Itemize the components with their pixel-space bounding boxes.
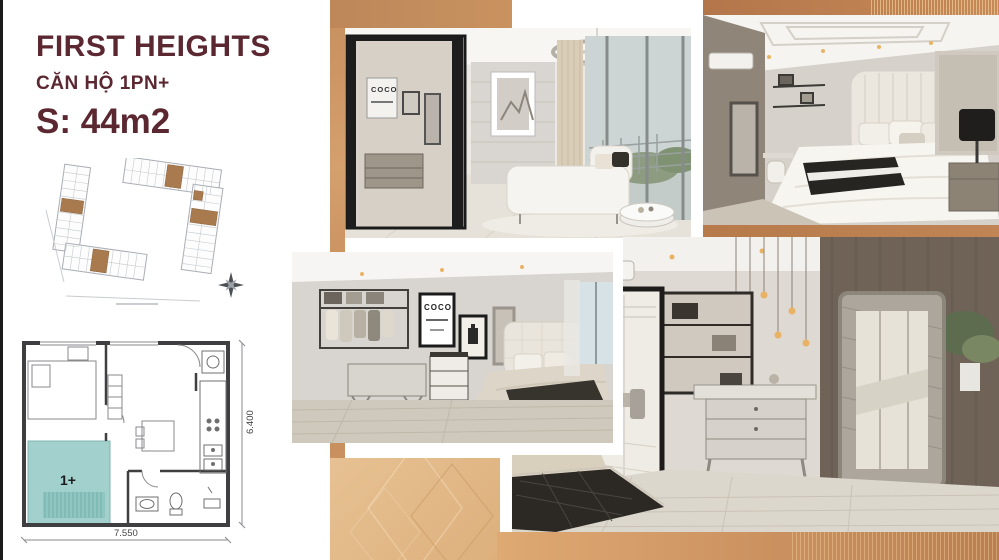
site-plan-diagram (38, 158, 253, 308)
copper-band-bottom-stripes (789, 532, 999, 560)
coffee-table (620, 203, 674, 227)
floor-plan: 1+ (10, 333, 275, 558)
glass-partition: COCO (347, 36, 465, 228)
height-dimension-label: 6.400 (245, 410, 256, 434)
copper-band-stripes (869, 0, 999, 15)
slide-left-edge (0, 0, 3, 560)
page-title: FIRST HEIGHTS (36, 30, 271, 64)
carpet-floor (292, 400, 613, 443)
photo-bedroom-angle: COCO (292, 252, 613, 443)
unit-type-label: CĂN HỘ 1PN+ (36, 73, 170, 95)
dining-table-symbol (136, 421, 174, 451)
standing-mirror (731, 103, 757, 175)
copper-band-bottom (497, 532, 999, 560)
kitchen-symbols (200, 351, 226, 473)
window-2 (564, 280, 613, 376)
bathroom-symbols (136, 487, 220, 515)
gold-rect-bottom (330, 458, 500, 560)
drawer-chest (430, 352, 468, 400)
wardrobe-symbol (108, 375, 122, 419)
width-dimension-label: 7.550 (114, 528, 138, 539)
coco-poster-text: COCO (371, 85, 398, 94)
street-name-illegible (116, 303, 158, 305)
coco-poster-frame: COCO (420, 294, 454, 346)
gold-diamond-pattern (330, 458, 500, 560)
photo-living-room: COCO (345, 28, 691, 238)
coco-poster-text-2: COCO (424, 303, 452, 312)
floorplan-highlight-room: 1+ (28, 441, 110, 525)
room-label: 1+ (60, 472, 76, 488)
copper-band-mid-right (703, 224, 999, 238)
bed-symbol (28, 347, 96, 419)
photo-bedroom-main (703, 15, 999, 225)
gold-ribbon-top (330, 0, 512, 28)
building-footprint (50, 158, 225, 289)
copper-band-top-right (703, 0, 999, 15)
leaning-mirror (840, 293, 944, 487)
perfume-poster-frame (460, 316, 486, 358)
interior-walls (106, 343, 228, 525)
slide: FIRST HEIGHTS CĂN HỘ 1PN+ S: 44m2 (0, 0, 999, 560)
compass-rose-icon (218, 272, 244, 298)
ac-unit (709, 53, 753, 69)
area-label: S: 44m2 (36, 102, 170, 142)
